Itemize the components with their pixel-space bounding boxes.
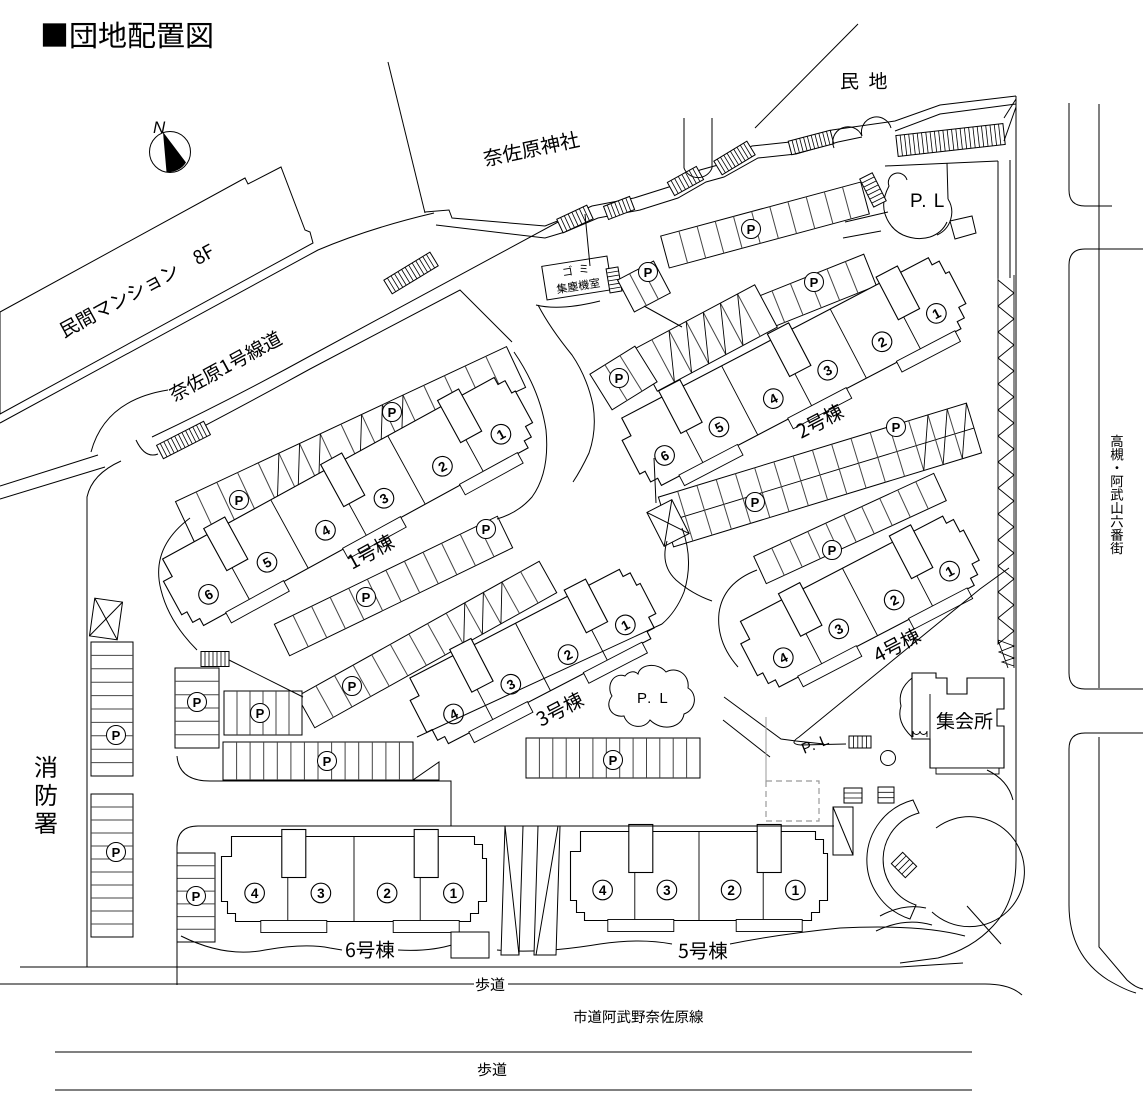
svg-text:P: P (348, 679, 357, 694)
svg-text:P: P (747, 222, 756, 237)
svg-text:P: P (256, 706, 265, 721)
svg-text:P. L: P. L (910, 191, 945, 212)
svg-text:P: P (751, 495, 760, 510)
svg-text:1: 1 (450, 886, 458, 901)
svg-text:P: P (192, 889, 201, 904)
svg-text:3: 3 (663, 883, 671, 898)
svg-text:P: P (892, 420, 901, 435)
svg-text:1: 1 (792, 883, 800, 898)
svg-text:P: P (644, 265, 653, 280)
svg-text:P: P (193, 695, 202, 710)
svg-text:P: P (112, 728, 121, 743)
svg-text:P: P (828, 543, 837, 558)
svg-text:P: P (235, 493, 244, 508)
svg-text:3: 3 (317, 886, 325, 901)
svg-text:P: P (810, 275, 819, 290)
svg-text:4: 4 (599, 883, 607, 898)
svg-text:2: 2 (383, 886, 391, 901)
svg-text:P: P (609, 753, 618, 768)
svg-text:4: 4 (251, 886, 259, 901)
svg-text:P: P (615, 371, 624, 386)
svg-text:P: P (482, 522, 491, 537)
svg-text:P: P (323, 754, 332, 769)
svg-text:P: P (388, 405, 397, 420)
svg-text:P: P (362, 590, 371, 605)
svg-text:P: P (112, 845, 121, 860)
svg-text:2: 2 (727, 883, 735, 898)
svg-text:P. L: P. L (637, 690, 670, 707)
